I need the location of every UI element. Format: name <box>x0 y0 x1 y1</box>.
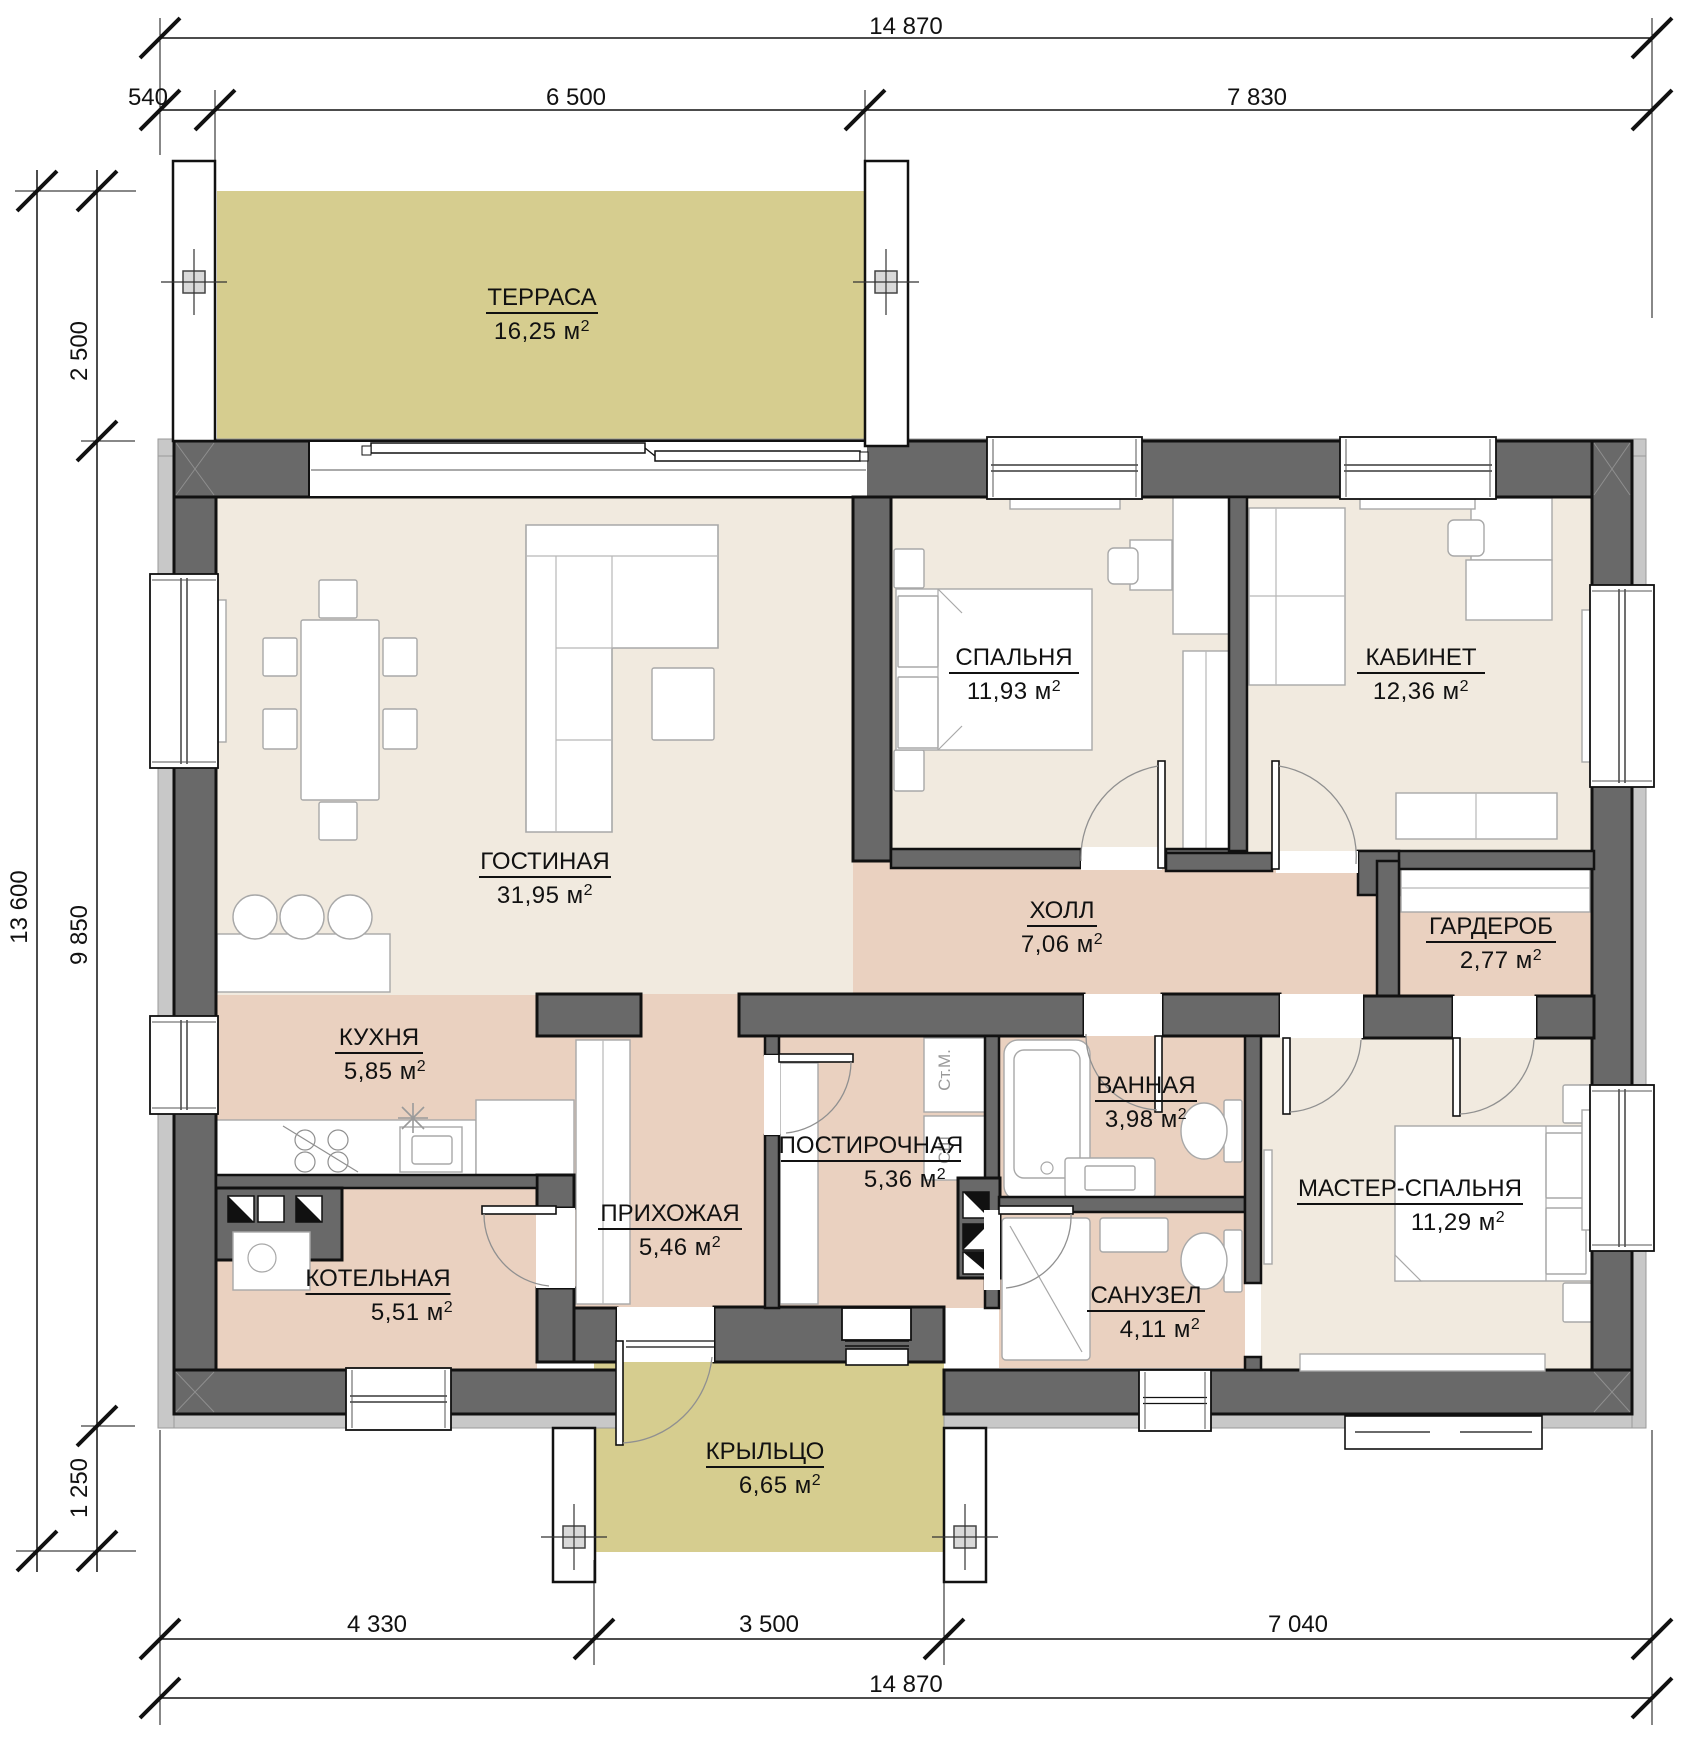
svg-text:6,65 м2: 6,65 м2 <box>739 1472 821 1499</box>
svg-text:КУХНЯ: КУХНЯ <box>339 1024 419 1051</box>
svg-text:7 040: 7 040 <box>1268 1611 1328 1638</box>
svg-text:МАСТЕР-СПАЛЬНЯ: МАСТЕР-СПАЛЬНЯ <box>1298 1175 1522 1202</box>
svg-text:31,95 м2: 31,95 м2 <box>497 882 593 909</box>
svg-text:5,85 м2: 5,85 м2 <box>344 1058 426 1085</box>
svg-text:ВАННАЯ: ВАННАЯ <box>1096 1072 1195 1099</box>
svg-text:6 500: 6 500 <box>546 84 606 111</box>
svg-text:КОТЕЛЬНАЯ: КОТЕЛЬНАЯ <box>305 1265 450 1292</box>
svg-text:1 250: 1 250 <box>66 1458 93 1518</box>
svg-text:12,36 м2: 12,36 м2 <box>1373 678 1469 705</box>
svg-text:7,06 м2: 7,06 м2 <box>1021 931 1103 958</box>
svg-text:540: 540 <box>128 84 168 111</box>
svg-text:ПРИХОЖАЯ: ПРИХОЖАЯ <box>600 1200 739 1227</box>
svg-text:5,46 м2: 5,46 м2 <box>639 1234 721 1261</box>
svg-text:СПАЛЬНЯ: СПАЛЬНЯ <box>955 644 1072 671</box>
svg-text:2 500: 2 500 <box>66 321 93 381</box>
svg-text:САНУЗЕЛ: САНУЗЕЛ <box>1090 1282 1201 1309</box>
svg-text:14 870: 14 870 <box>869 1671 942 1698</box>
svg-text:7 830: 7 830 <box>1227 84 1287 111</box>
svg-text:ХОЛЛ: ХОЛЛ <box>1029 897 1094 924</box>
svg-text:2,77 м2: 2,77 м2 <box>1460 947 1542 974</box>
svg-text:ТЕРРАСА: ТЕРРАСА <box>487 284 596 311</box>
svg-text:9 850: 9 850 <box>66 905 93 965</box>
svg-text:4,11 м2: 4,11 м2 <box>1120 1316 1201 1343</box>
svg-text:5,36 м2: 5,36 м2 <box>864 1166 946 1193</box>
svg-text:ГОСТИНАЯ: ГОСТИНАЯ <box>480 848 609 875</box>
svg-text:11,29 м2: 11,29 м2 <box>1411 1209 1505 1236</box>
svg-text:КАБИНЕТ: КАБИНЕТ <box>1366 644 1477 671</box>
svg-text:ПОСТИРОЧНАЯ: ПОСТИРОЧНАЯ <box>779 1132 964 1159</box>
svg-text:5,51 м2: 5,51 м2 <box>371 1299 453 1326</box>
svg-text:3,98 м2: 3,98 м2 <box>1105 1106 1187 1133</box>
svg-text:ГАРДЕРОБ: ГАРДЕРОБ <box>1429 913 1553 940</box>
svg-text:11,93 м2: 11,93 м2 <box>967 678 1061 705</box>
svg-text:14 870: 14 870 <box>869 13 942 40</box>
svg-text:КРЫЛЬЦО: КРЫЛЬЦО <box>706 1438 825 1465</box>
svg-text:13 600: 13 600 <box>6 870 33 943</box>
svg-text:3 500: 3 500 <box>739 1611 799 1638</box>
svg-text:4 330: 4 330 <box>347 1611 407 1638</box>
svg-text:16,25 м2: 16,25 м2 <box>494 318 590 345</box>
svg-text:Ст.М.: Ст.М. <box>935 1049 954 1091</box>
